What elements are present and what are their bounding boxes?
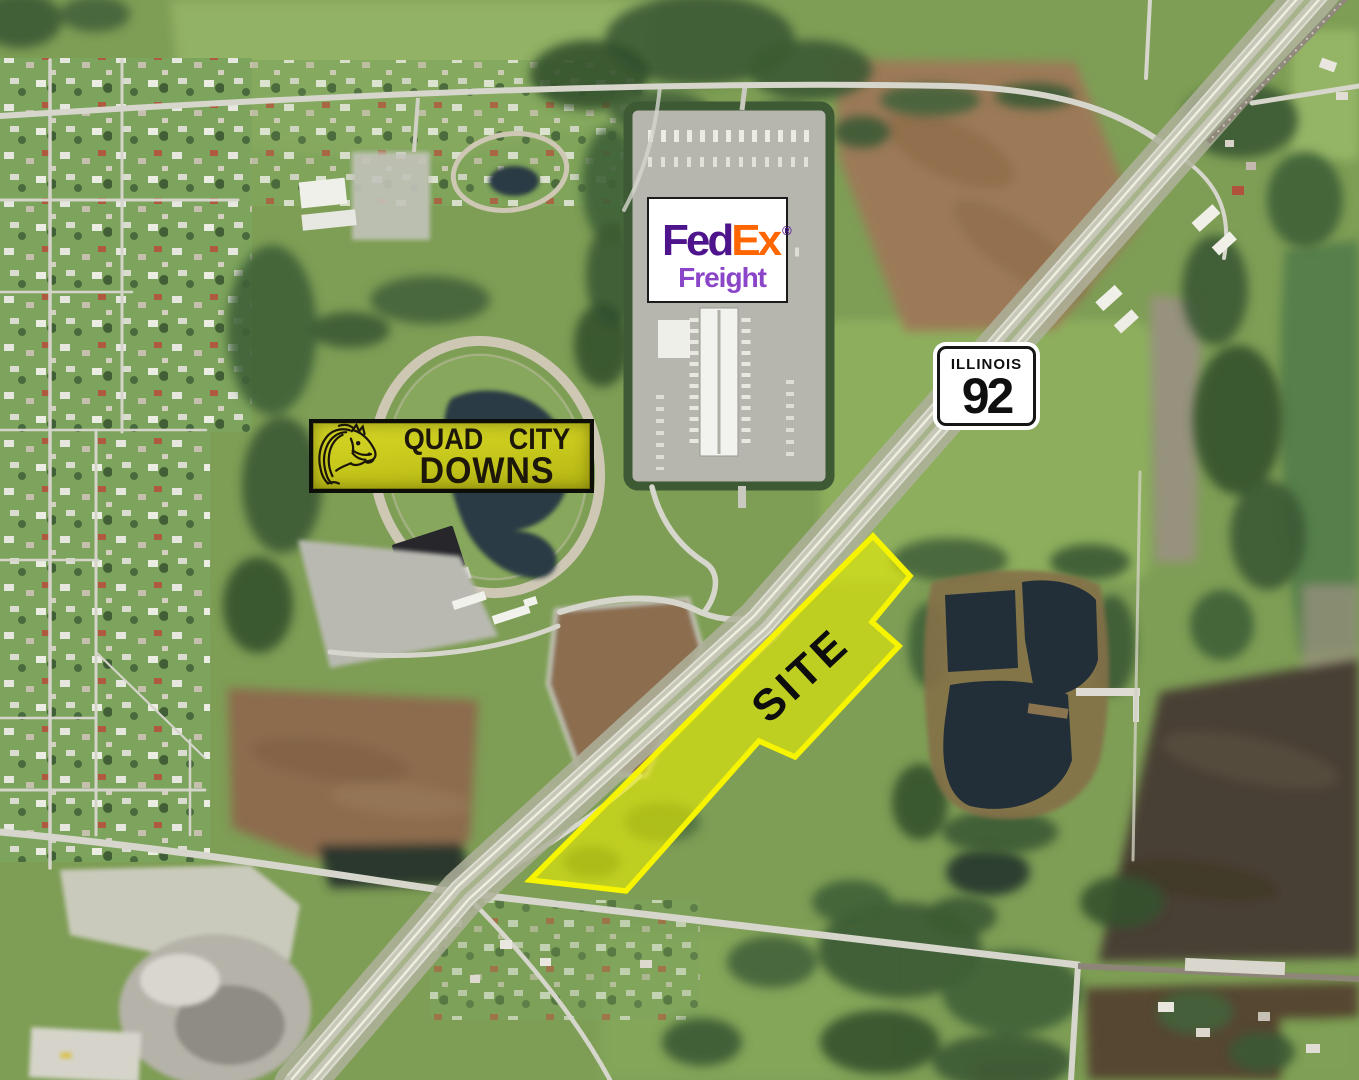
fedex-fed-text: Fed [662, 216, 731, 265]
fedex-freight-text: Freight [649, 263, 766, 292]
route-shield-number: 92 [940, 373, 1033, 419]
aerial-site-map: SITE FedEx® Freight ILLINOIS 92 [0, 0, 1359, 1080]
racetrack-sign-line2: DOWNS [391, 454, 582, 487]
registered-mark-icon: ® [782, 223, 792, 238]
fedex-freight-logo: FedEx® Freight [647, 197, 788, 303]
illinois-92-route-shield: ILLINOIS 92 [933, 342, 1040, 430]
fedex-wordmark: FedEx® [662, 219, 786, 263]
racetrack-sign-text: QUAD CITY DOWNS [383, 423, 591, 489]
site-outline-layer [0, 0, 1359, 1080]
horse-head-icon [313, 423, 385, 489]
route-shield-border: ILLINOIS 92 [937, 346, 1036, 426]
fedex-ex-text: Ex [731, 216, 779, 265]
quad-city-downs-sign: QUAD CITY DOWNS [309, 419, 594, 493]
